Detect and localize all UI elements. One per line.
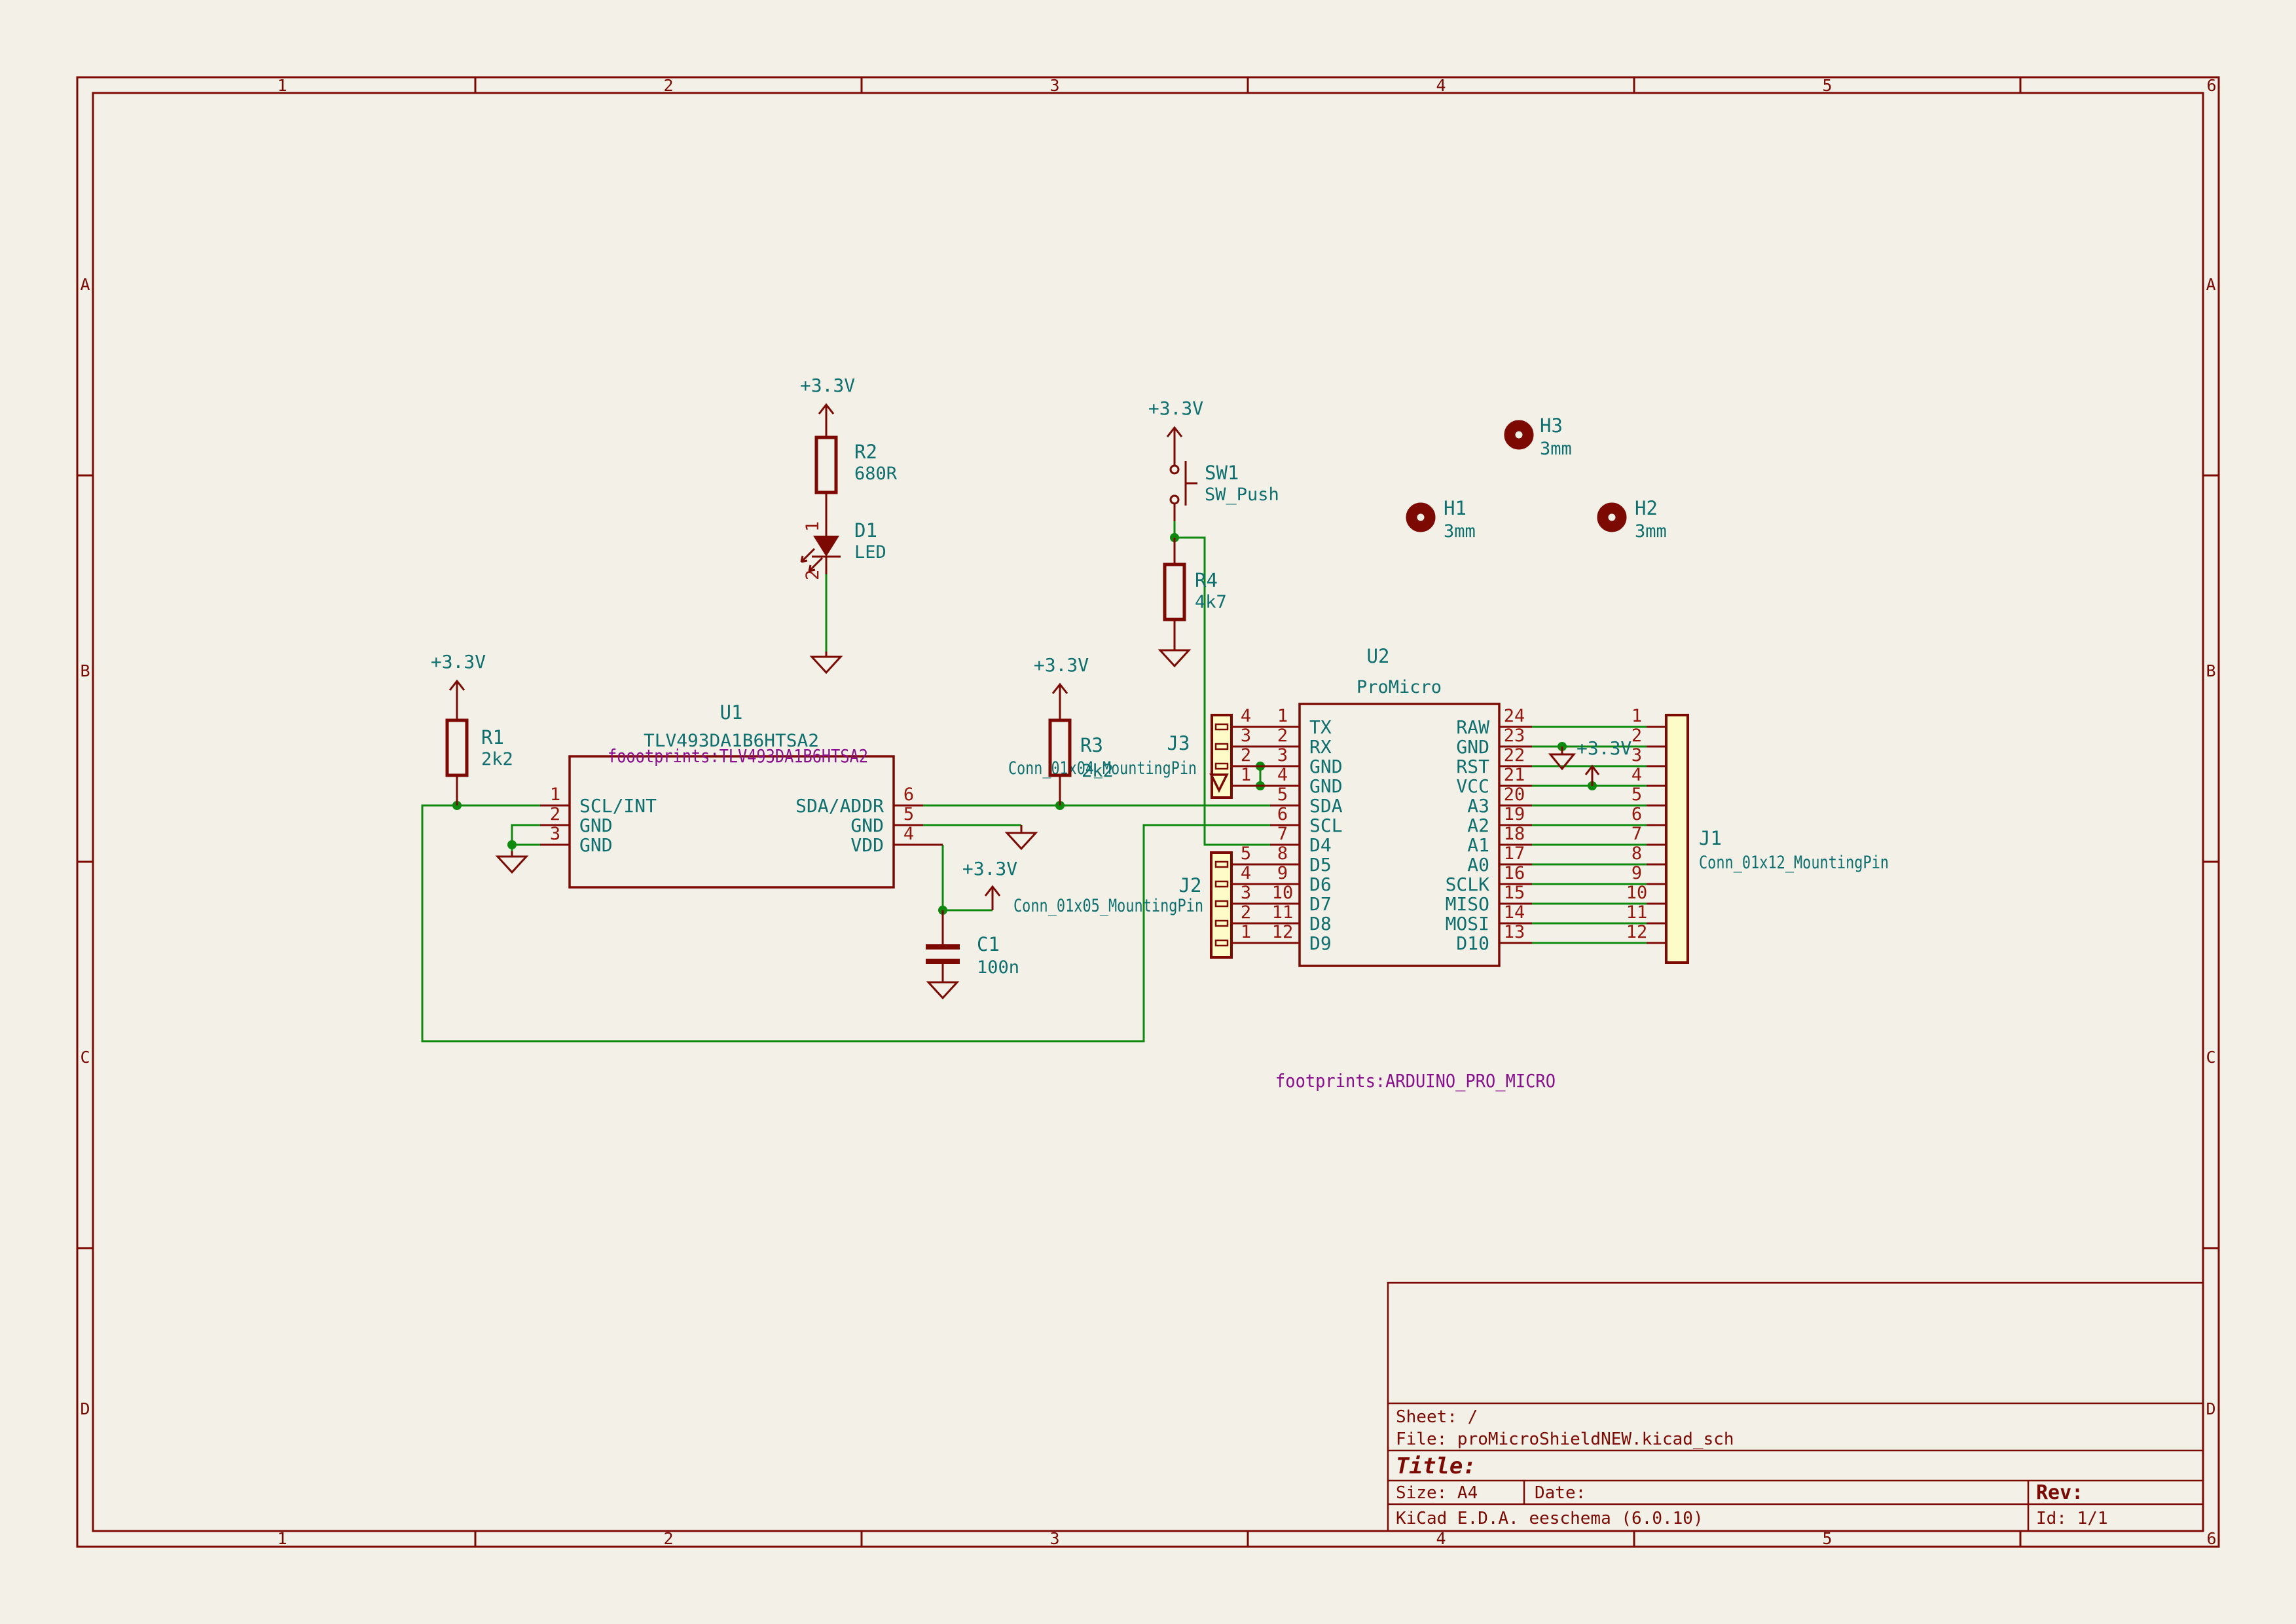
u1-footprint: foootprints:TLV493DA1B6HTSA2: [608, 745, 868, 767]
svg-text:2: 2: [1241, 902, 1251, 923]
svg-text:4: 4: [1241, 706, 1251, 726]
svg-text:1: 1: [1631, 706, 1642, 726]
svg-text:4: 4: [1241, 863, 1251, 883]
r1-ref: R1: [481, 726, 504, 748]
j1-ref: J1: [1699, 827, 1722, 849]
svg-text:C: C: [2206, 1048, 2215, 1067]
svg-text:17: 17: [1504, 843, 1525, 864]
component-u1[interactable]: U1 TLV493DA1B6HTSA2 foootprints:TLV493DA…: [540, 701, 923, 887]
svg-text:B: B: [80, 661, 90, 680]
component-r4[interactable]: R4 4k7: [1165, 538, 1227, 645]
svg-text:5: 5: [903, 804, 914, 824]
svg-text:RST: RST: [1456, 756, 1489, 777]
border-row-labels: A B C D A B C D: [80, 275, 2215, 1418]
svg-text:D4: D4: [1309, 834, 1332, 856]
power-33v-c1[interactable]: +3.3V: [962, 858, 1017, 910]
svg-text:1: 1: [277, 1529, 287, 1548]
svg-text:1: 1: [1241, 765, 1251, 785]
titleblock-date: Date:: [1535, 1483, 1586, 1503]
svg-text:D7: D7: [1309, 893, 1332, 915]
power-33v-r1[interactable]: +3.3V: [431, 651, 486, 720]
h1-value: 3mm: [1444, 521, 1476, 542]
r3-value: 2k2: [1082, 761, 1114, 781]
svg-text:3: 3: [550, 824, 560, 844]
svg-text:D8: D8: [1309, 913, 1332, 934]
titleblock-rev-label: Rev:: [2036, 1481, 2083, 1504]
power-label: +3.3V: [1576, 737, 1631, 759]
svg-text:4: 4: [903, 824, 914, 844]
r2-value: 680R: [854, 464, 898, 484]
svg-text:SCLK: SCLK: [1446, 874, 1490, 895]
mounting-hole-icon: [1412, 508, 1430, 526]
svg-text:3: 3: [1241, 726, 1251, 746]
r2-ref: R2: [854, 441, 877, 463]
component-c1[interactable]: C1 100n: [926, 910, 1019, 978]
svg-text:6: 6: [2206, 1529, 2216, 1548]
svg-text:16: 16: [1504, 863, 1525, 883]
svg-text:20: 20: [1504, 784, 1525, 805]
svg-text:SDA: SDA: [1309, 795, 1343, 817]
svg-text:23: 23: [1504, 726, 1525, 746]
power-label: +3.3V: [431, 651, 486, 673]
led-triangle-icon: [813, 536, 839, 557]
titleblock-sheet: Sheet: /: [1396, 1407, 1478, 1427]
r3-ref: R3: [1080, 734, 1103, 756]
schematic-canvas: 1 2 3 4 5 6 1 2 3 4 5 6 A B C D A B C D: [0, 0, 2296, 1624]
u2-right-pin-row: 24 1 RAW: [1456, 706, 1680, 738]
titleblock-sheet-id: Id: 1/1: [2036, 1509, 2108, 1528]
u2-right-pin-row: 21 4 VCC: [1456, 765, 1680, 797]
svg-text:2: 2: [663, 1529, 673, 1548]
svg-text:MOSI: MOSI: [1446, 913, 1489, 934]
u2-value: ProMicro: [1357, 677, 1442, 697]
svg-text:9: 9: [1277, 863, 1288, 883]
svg-text:2: 2: [1631, 726, 1642, 746]
svg-text:D5: D5: [1309, 854, 1332, 876]
svg-text:6: 6: [2206, 76, 2216, 95]
mounting-hole-icon: [1510, 426, 1528, 444]
svg-text:14: 14: [1504, 902, 1525, 923]
component-j3[interactable]: J3 Conn_01x04_MountingPin: [1008, 715, 1270, 798]
svg-text:5: 5: [1277, 784, 1288, 805]
svg-text:13: 13: [1504, 922, 1525, 942]
power-33v-r2[interactable]: +3.3V: [800, 375, 855, 437]
svg-text:GND: GND: [1456, 736, 1489, 758]
svg-text:A2: A2: [1467, 815, 1489, 836]
u2-footprint: footprints:ARDUINO_PRO_MICRO: [1275, 1070, 1556, 1092]
svg-text:1: 1: [1277, 706, 1288, 726]
svg-text:B: B: [2206, 661, 2215, 680]
r4-value: 4k7: [1195, 592, 1227, 612]
svg-text:9: 9: [1631, 863, 1642, 883]
power-label: +3.3V: [1034, 654, 1089, 676]
svg-text:2: 2: [550, 804, 560, 824]
d1-pin1: 1: [803, 521, 823, 532]
svg-text:15: 15: [1504, 883, 1525, 903]
svg-text:21: 21: [1504, 765, 1525, 785]
u1-ref: U1: [720, 701, 743, 724]
d1-ref: D1: [854, 519, 877, 542]
j2-value: Conn_01x05_MountingPin: [1013, 896, 1203, 916]
c1-value: 100n: [977, 957, 1019, 978]
power-label: +3.3V: [962, 858, 1017, 879]
svg-text:11: 11: [1626, 902, 1648, 923]
svg-text:GND: GND: [1309, 775, 1343, 797]
component-h3[interactable]: H3 3mm: [1510, 415, 1572, 459]
svg-text:2: 2: [663, 76, 673, 95]
svg-text:RAW: RAW: [1456, 716, 1489, 738]
svg-text:GND: GND: [579, 815, 613, 836]
svg-text:3: 3: [1277, 745, 1288, 766]
svg-text:3: 3: [1631, 745, 1642, 766]
gnd-symbol-d1: [812, 652, 841, 673]
svg-text:3: 3: [1049, 1529, 1059, 1548]
svg-text:12: 12: [1626, 922, 1648, 942]
r1-value: 2k2: [481, 749, 513, 769]
titleblock-title-label: Title:: [1396, 1453, 1476, 1479]
mounting-hole-icon: [1603, 508, 1621, 526]
svg-text:D6: D6: [1309, 874, 1332, 895]
svg-text:A: A: [2206, 275, 2215, 294]
svg-text:5: 5: [1822, 76, 1832, 95]
svg-text:MISO: MISO: [1446, 893, 1489, 915]
power-label: +3.3V: [1148, 397, 1203, 419]
component-h1[interactable]: H1 3mm: [1412, 497, 1476, 542]
power-33v-vcc[interactable]: +3.3V: [1576, 737, 1631, 786]
svg-text:2: 2: [1241, 745, 1251, 766]
h2-ref: H2: [1635, 497, 1658, 519]
svg-text:TX: TX: [1309, 716, 1332, 738]
svg-text:11: 11: [1272, 902, 1294, 923]
svg-text:5: 5: [1822, 1529, 1832, 1548]
svg-text:6: 6: [1277, 804, 1288, 824]
gnd-symbol-u1-left: [498, 851, 526, 872]
u2-ref: U2: [1367, 645, 1390, 667]
component-d1[interactable]: 1 2 D1 LED: [801, 519, 886, 580]
titleblock-file: File: proMicroShieldNEW.kicad_sch: [1396, 1430, 1734, 1449]
svg-text:A0: A0: [1467, 854, 1489, 876]
component-u2[interactable]: U2 ProMicro footprints:ARDUINO_PRO_MICRO…: [1241, 645, 1680, 1092]
c1-ref: C1: [977, 933, 1000, 955]
sw1-value: SW_Push: [1205, 485, 1279, 505]
sw1-ref: SW1: [1205, 462, 1239, 484]
svg-text:4: 4: [1436, 1529, 1446, 1548]
svg-text:19: 19: [1504, 804, 1525, 824]
svg-text:6: 6: [1631, 804, 1642, 824]
h1-ref: H1: [1444, 497, 1467, 519]
svg-text:C: C: [80, 1048, 90, 1067]
border-column-labels: 1 2 3 4 5 6 1 2 3 4 5 6: [277, 76, 2216, 1548]
h2-value: 3mm: [1635, 521, 1667, 542]
svg-text:GND: GND: [1309, 756, 1343, 777]
svg-text:A: A: [80, 275, 90, 294]
svg-text:4: 4: [1631, 765, 1642, 785]
svg-text:RX: RX: [1309, 736, 1332, 758]
svg-text:1: 1: [277, 76, 287, 95]
u2-right-pin-row: 13 12 D10: [1456, 922, 1680, 954]
titleblock-generator: KiCad E.D.A. eeschema (6.0.10): [1396, 1509, 1704, 1528]
svg-text:10: 10: [1626, 883, 1648, 903]
svg-text:6: 6: [903, 784, 914, 805]
titleblock-size: Size: A4: [1396, 1483, 1478, 1503]
svg-text:18: 18: [1504, 824, 1525, 844]
svg-text:4: 4: [1277, 765, 1288, 785]
u2-right-pin-row: 23 2 GND: [1456, 726, 1680, 758]
component-j2[interactable]: J2 Conn_01x05_MountingPin: [1013, 853, 1270, 957]
svg-text:GND: GND: [579, 834, 613, 856]
svg-text:22: 22: [1504, 745, 1525, 766]
svg-text:7: 7: [1277, 824, 1288, 844]
svg-text:12: 12: [1272, 922, 1294, 942]
j3-ref: J3: [1167, 732, 1190, 754]
r4-ref: R4: [1195, 569, 1218, 591]
component-sw1[interactable]: SW1 SW_Push: [1171, 461, 1279, 521]
component-h2[interactable]: H2 3mm: [1603, 497, 1667, 542]
page-border: 1 2 3 4 5 6 1 2 3 4 5 6 A B C D A B C D: [77, 76, 2219, 1548]
svg-text:10: 10: [1272, 883, 1294, 903]
led-emission-arrows-icon: [801, 549, 822, 571]
svg-text:5: 5: [1241, 843, 1251, 864]
svg-text:A1: A1: [1467, 834, 1489, 856]
gnd-symbol-u1-right: [1007, 825, 1036, 849]
title-block: Sheet: / File: proMicroShieldNEW.kicad_s…: [1388, 1283, 2203, 1531]
svg-text:24: 24: [1504, 706, 1525, 726]
svg-text:SDA/ADDR: SDA/ADDR: [795, 795, 884, 817]
d1-value: LED: [854, 542, 886, 563]
svg-text:1: 1: [550, 784, 560, 805]
svg-text:8: 8: [1277, 843, 1288, 864]
svg-text:SCL/INT: SCL/INT: [579, 795, 657, 817]
gnd-symbol-c1: [928, 977, 957, 998]
svg-text:VDD: VDD: [850, 834, 884, 856]
svg-text:D10: D10: [1456, 932, 1489, 954]
j1-value: Conn_01x12_MountingPin: [1699, 853, 1889, 873]
svg-text:7: 7: [1631, 824, 1642, 844]
h3-value: 3mm: [1540, 439, 1572, 459]
svg-text:1: 1: [1241, 922, 1251, 942]
svg-text:SCL: SCL: [1309, 815, 1343, 836]
svg-text:GND: GND: [850, 815, 884, 836]
svg-text:3: 3: [1241, 883, 1251, 903]
power-33v-sw1[interactable]: +3.3V: [1148, 397, 1203, 465]
svg-text:A3: A3: [1467, 795, 1489, 817]
power-33v-r3[interactable]: +3.3V: [1034, 654, 1089, 720]
gnd-symbol-r4: [1160, 645, 1189, 666]
svg-text:D9: D9: [1309, 932, 1332, 954]
svg-text:3: 3: [1049, 76, 1059, 95]
h3-ref: H3: [1540, 415, 1563, 437]
j2-ref: J2: [1179, 874, 1202, 896]
svg-text:4: 4: [1436, 76, 1446, 95]
svg-text:D: D: [2206, 1399, 2215, 1418]
power-label: +3.3V: [800, 375, 855, 396]
svg-text:D: D: [80, 1399, 90, 1418]
component-j1[interactable]: J1 Conn_01x12_MountingPin: [1666, 715, 1889, 963]
svg-text:5: 5: [1631, 784, 1642, 805]
svg-text:8: 8: [1631, 843, 1642, 864]
svg-text:VCC: VCC: [1456, 775, 1489, 797]
svg-text:2: 2: [1277, 726, 1288, 746]
